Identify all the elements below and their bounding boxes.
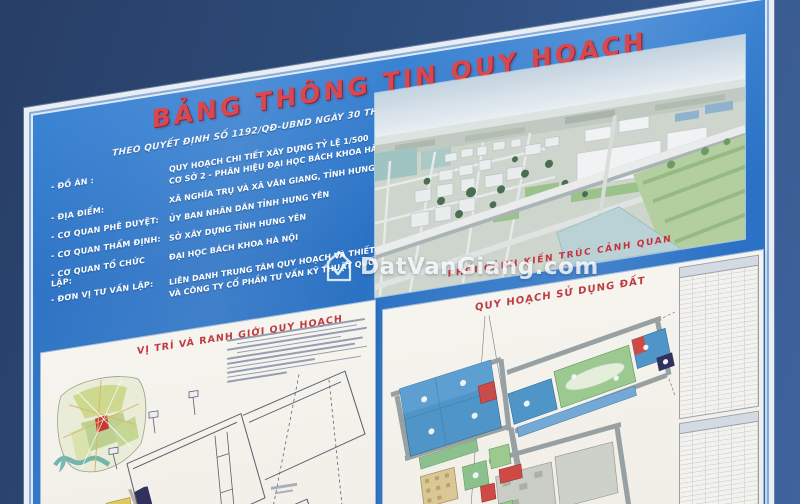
land-use-statistics-table <box>679 255 759 420</box>
land-use-map <box>389 286 675 504</box>
location-boundary-panel: VỊ TRÍ VÀ RANH GIỚI QUY HOẠCH <box>41 300 375 504</box>
land-use-plan-panel: QUY HOẠCH SỬ DỤNG ĐẤT <box>383 250 763 504</box>
photo-of-planning-billboard: BẢNG THÔNG TIN QUY HOẠCH THEO QUYẾT ĐỊNH… <box>0 0 800 504</box>
planning-information-board: BẢNG THÔNG TIN QUY HOẠCH THEO QUYẾT ĐỊNH… <box>24 0 774 504</box>
land-use-statistics-table-2 <box>679 411 759 504</box>
table-header-band <box>680 256 758 278</box>
info-label: - ĐỒ ÁN : <box>51 164 169 192</box>
